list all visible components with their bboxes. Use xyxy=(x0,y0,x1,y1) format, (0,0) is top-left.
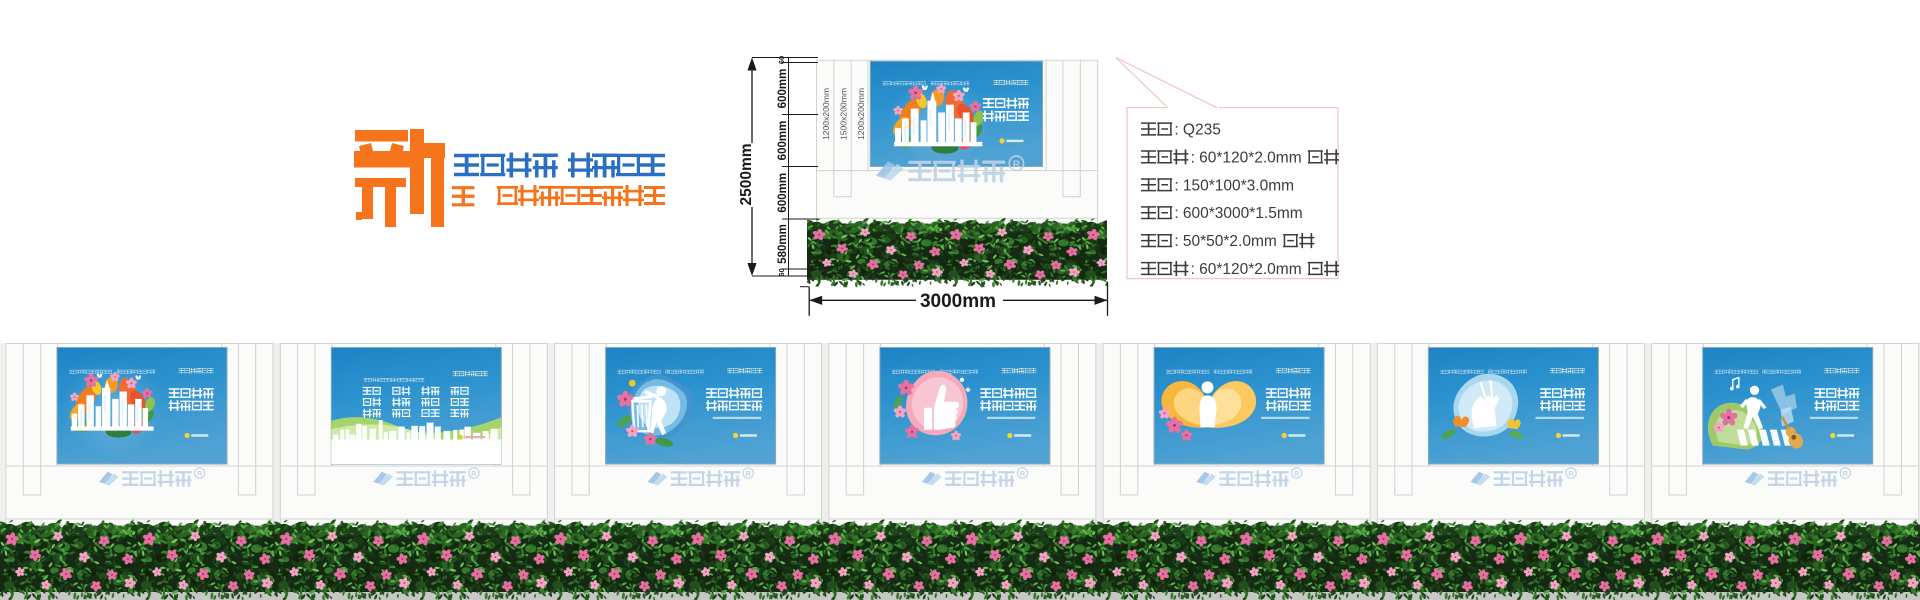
svg-text:60*120*2.0mm: 60*120*2.0mm xyxy=(1199,261,1302,278)
svg-text:Q235: Q235 xyxy=(1183,122,1221,139)
svg-text::: : xyxy=(1174,205,1178,222)
svg-text:600mm: 600mm xyxy=(777,69,789,109)
svg-text:2500mm: 2500mm xyxy=(738,143,755,205)
svg-text::: : xyxy=(1174,177,1178,194)
svg-text:150*100*3.0mm: 150*100*3.0mm xyxy=(1183,177,1294,194)
svg-text:600mm: 600mm xyxy=(777,173,789,213)
svg-text:600*3000*1.5mm: 600*3000*1.5mm xyxy=(1183,205,1303,222)
svg-text:1200x200mm: 1200x200mm xyxy=(821,88,831,140)
svg-text:3000mm: 3000mm xyxy=(920,291,996,312)
svg-text::: : xyxy=(1191,261,1195,278)
svg-text:60: 60 xyxy=(777,56,786,64)
svg-text:1500x200mm: 1500x200mm xyxy=(839,88,849,140)
svg-text::: : xyxy=(1174,122,1178,139)
svg-text:60: 60 xyxy=(777,268,786,276)
svg-text:1200x200mm: 1200x200mm xyxy=(856,88,866,140)
svg-text:50*50*2.0mm: 50*50*2.0mm xyxy=(1183,233,1277,250)
svg-text:580mm: 580mm xyxy=(777,224,789,264)
svg-text:600mm: 600mm xyxy=(777,121,789,161)
svg-text::: : xyxy=(1174,233,1178,250)
svg-text::: : xyxy=(1191,149,1195,166)
svg-text:60*120*2.0mm: 60*120*2.0mm xyxy=(1199,149,1302,166)
